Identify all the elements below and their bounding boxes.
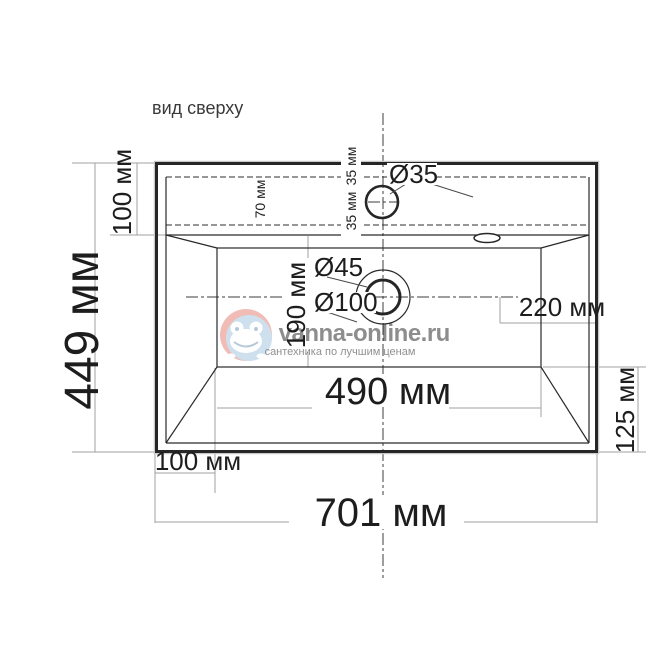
view-title: вид сверху xyxy=(152,98,243,118)
label-bowl-width: 490 мм xyxy=(325,371,451,413)
label-left-offset: 100 мм xyxy=(155,446,241,476)
label-faucet-offset-down: 35 мм xyxy=(343,192,359,231)
frog-foot-left xyxy=(227,354,236,359)
label-faucet-offset-up: 35 мм xyxy=(343,147,359,186)
frog-pupil-left xyxy=(235,327,239,331)
label-faucet-offset-up-group: 35 мм xyxy=(341,140,361,192)
label-drain-inner-diameter: Ø45 xyxy=(314,252,363,282)
label-drain-to-right: 220 мм xyxy=(519,292,605,322)
label-deck-depth: 100 мм xyxy=(107,149,137,235)
label-deck-hidden: 70 мм xyxy=(252,180,268,219)
bowl-slope-bl xyxy=(166,367,217,443)
drawing-canvas: вид сверху 449 мм 100 мм 70 мм 35 мм 35 … xyxy=(0,0,650,650)
label-faucet-offset-down-group: 35 мм xyxy=(341,185,361,237)
label-overall-height: 449 мм xyxy=(56,250,109,409)
sink-top-view-drawing: вид сверху 449 мм 100 мм 70 мм 35 мм 35 … xyxy=(0,0,650,650)
bowl-slope-tl xyxy=(166,235,217,248)
watermark-tagline: сантехника по лучшим ценам xyxy=(265,346,416,358)
bowl-slope-tr xyxy=(541,235,589,248)
watermark-brand-left: vanna- xyxy=(279,320,354,347)
watermark-brand-right: online.ru xyxy=(353,320,450,347)
label-right-margin: 125 мм xyxy=(610,367,640,453)
bowl-slope-br xyxy=(541,367,589,443)
label-drain-outer-diameter: Ø100 xyxy=(314,287,378,317)
label-overall-width: 701 мм xyxy=(315,491,448,535)
label-faucet-diameter: Ø35 xyxy=(389,159,438,189)
overflow-hole xyxy=(474,234,500,243)
frog-pupil-right xyxy=(254,327,258,331)
